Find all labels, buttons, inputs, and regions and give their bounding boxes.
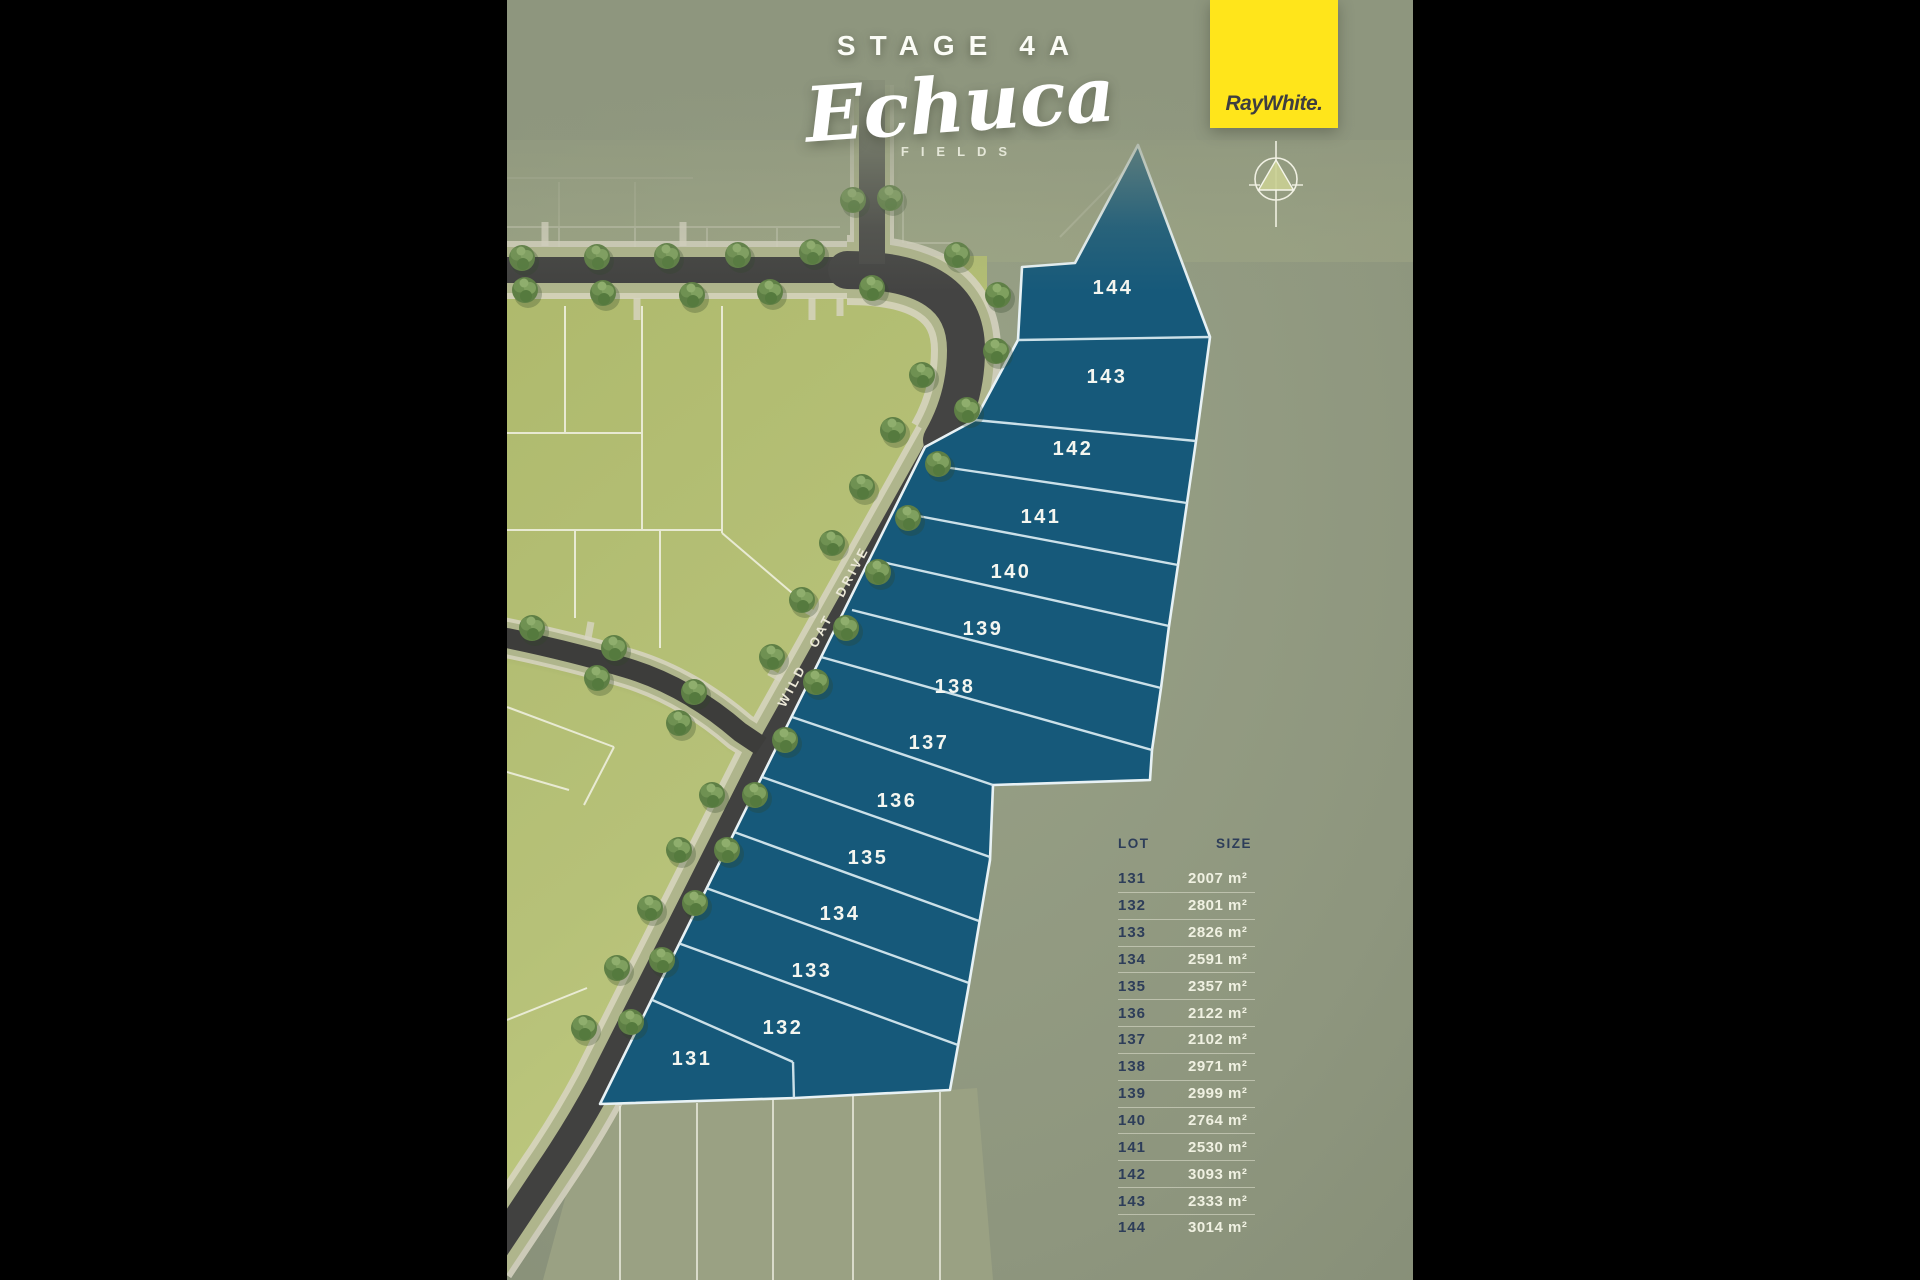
table-row[interactable]: 1372102 m²: [1118, 1027, 1255, 1054]
map-lot-label-132[interactable]: 132: [763, 1017, 804, 1039]
masterplan-poster: WILD OAT DRIVE 1311321331341351361371381…: [507, 0, 1413, 1280]
table-row[interactable]: 1342591 m²: [1118, 947, 1255, 974]
table-row[interactable]: 1392999 m²: [1118, 1081, 1255, 1108]
table-lot-size: 2826 m²: [1188, 924, 1247, 941]
map-lot-label-135[interactable]: 135: [848, 847, 889, 869]
table-header: LOT SIZE: [1118, 836, 1255, 852]
map-lot-label-139[interactable]: 139: [963, 618, 1004, 640]
table-lot-id: 136: [1118, 1005, 1164, 1022]
table-lot-size: 2971 m²: [1188, 1058, 1247, 1075]
map-lot-label-136[interactable]: 136: [877, 790, 918, 812]
table-row[interactable]: 1352357 m²: [1118, 973, 1255, 1000]
map-lot-label-131[interactable]: 131: [672, 1048, 713, 1070]
table-row[interactable]: 1412530 m²: [1118, 1134, 1255, 1161]
table-lot-size: 2530 m²: [1188, 1139, 1247, 1156]
table-lot-id: 134: [1118, 951, 1164, 968]
table-lot-id: 140: [1118, 1112, 1164, 1129]
table-lot-id: 138: [1118, 1058, 1164, 1075]
table-lot-id: 137: [1118, 1031, 1164, 1048]
map-lot-label-134[interactable]: 134: [820, 903, 861, 925]
map-lot-label-133[interactable]: 133: [792, 960, 833, 982]
map-lot-label-137[interactable]: 137: [909, 732, 950, 754]
table-lot-size: 2591 m²: [1188, 951, 1247, 968]
raywhite-logo-text: RayWhite.: [1210, 92, 1338, 116]
table-lot-size: 2102 m²: [1188, 1031, 1247, 1048]
lot-size-table: LOT SIZE 1312007 m²1322801 m²1332826 m²1…: [1118, 836, 1255, 1241]
table-lot-size: 3093 m²: [1188, 1166, 1247, 1183]
table-lot-id: 133: [1118, 924, 1164, 941]
letterbox-left: [0, 0, 507, 1280]
lot-table-rows: 1312007 m²1322801 m²1332826 m²1342591 m²…: [1118, 866, 1255, 1241]
table-lot-size: 2333 m²: [1188, 1193, 1247, 1210]
table-lot-size: 2357 m²: [1188, 978, 1247, 995]
table-row[interactable]: 1322801 m²: [1118, 893, 1255, 920]
table-lot-id: 144: [1118, 1219, 1164, 1236]
raywhite-logo[interactable]: RayWhite.: [1210, 0, 1338, 128]
table-lot-size: 2801 m²: [1188, 897, 1247, 914]
table-lot-id: 131: [1118, 870, 1164, 887]
table-lot-size: 2764 m²: [1188, 1112, 1247, 1129]
table-row[interactable]: 1362122 m²: [1118, 1000, 1255, 1027]
table-lot-id: 143: [1118, 1193, 1164, 1210]
table-lot-id: 139: [1118, 1085, 1164, 1102]
map-lot-label-140[interactable]: 140: [991, 561, 1032, 583]
table-lot-size: 2999 m²: [1188, 1085, 1247, 1102]
table-row[interactable]: 1432333 m²: [1118, 1188, 1255, 1215]
table-lot-id: 132: [1118, 897, 1164, 914]
table-lot-id: 142: [1118, 1166, 1164, 1183]
table-lot-size: 2122 m²: [1188, 1005, 1247, 1022]
table-row[interactable]: 1402764 m²: [1118, 1108, 1255, 1135]
map-lot-label-141[interactable]: 141: [1021, 506, 1062, 528]
north-compass-icon: [1246, 133, 1306, 233]
table-row[interactable]: 1382971 m²: [1118, 1054, 1255, 1081]
table-lot-size: 3014 m²: [1188, 1219, 1247, 1236]
letterbox-right: [1413, 0, 1920, 1280]
size-column-header: SIZE: [1216, 836, 1252, 852]
map-lot-label-142[interactable]: 142: [1053, 438, 1094, 460]
table-row[interactable]: 1332826 m²: [1118, 920, 1255, 947]
map-lot-label-143[interactable]: 143: [1087, 366, 1128, 388]
lot-column-header: LOT: [1118, 836, 1150, 852]
map-lot-label-138[interactable]: 138: [935, 676, 976, 698]
table-lot-id: 135: [1118, 978, 1164, 995]
table-row[interactable]: 1443014 m²: [1118, 1215, 1255, 1241]
table-row[interactable]: 1312007 m²: [1118, 866, 1255, 893]
table-row[interactable]: 1423093 m²: [1118, 1161, 1255, 1188]
table-lot-id: 141: [1118, 1139, 1164, 1156]
table-lot-size: 2007 m²: [1188, 870, 1247, 887]
